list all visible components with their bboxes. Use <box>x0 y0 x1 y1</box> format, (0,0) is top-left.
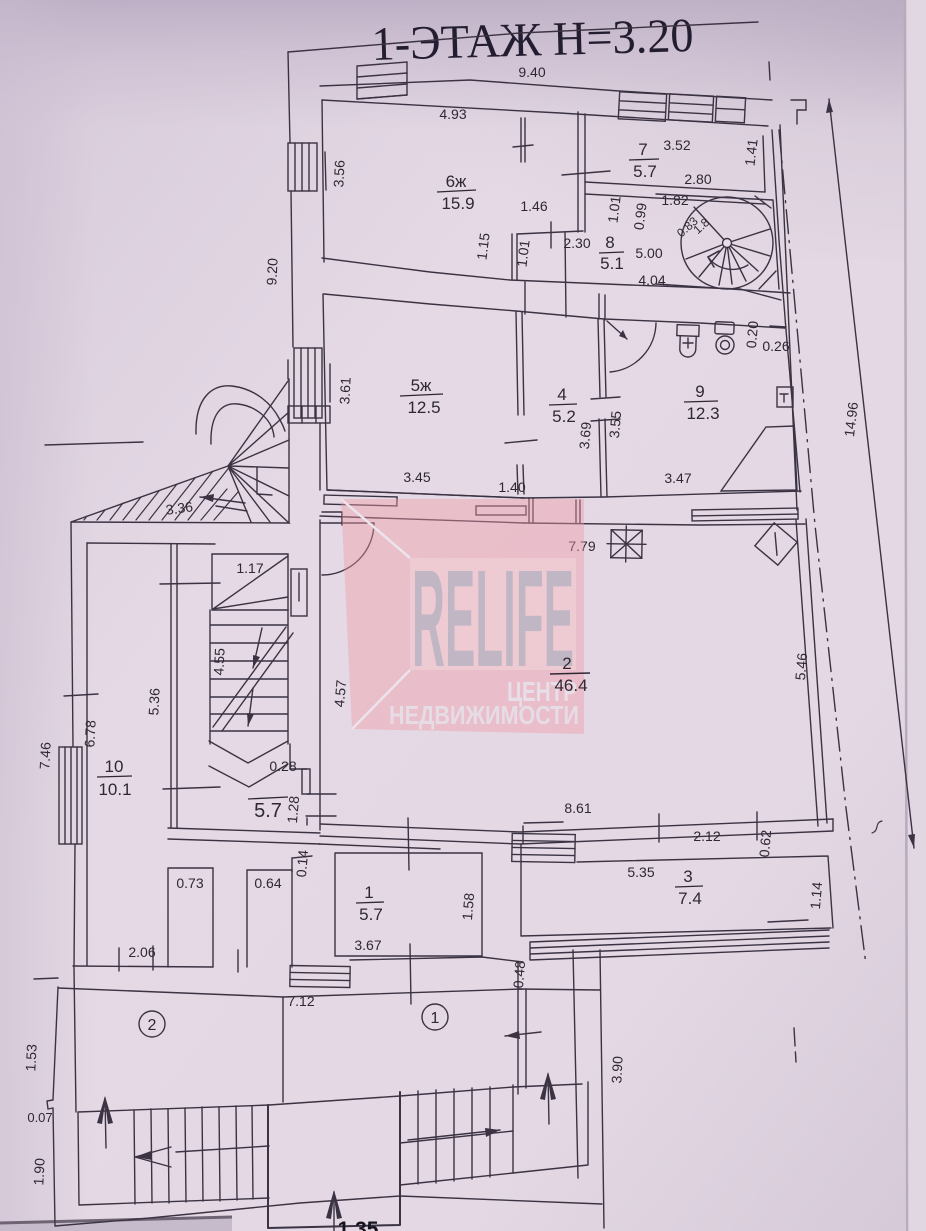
svg-text:4.55: 4.55 <box>210 648 227 676</box>
svg-text:7.46: 7.46 <box>36 742 53 770</box>
svg-text:15.9: 15.9 <box>441 194 474 213</box>
svg-text:0.73: 0.73 <box>176 875 203 891</box>
svg-text:9.40: 9.40 <box>518 64 545 80</box>
svg-text:2.12: 2.12 <box>693 828 720 844</box>
svg-text:0.48: 0.48 <box>510 960 528 989</box>
svg-text:НЕДВИЖИМОСТИ: НЕДВИЖИМОСТИ <box>389 700 579 730</box>
svg-text:0.28: 0.28 <box>269 758 296 774</box>
svg-text:5.2: 5.2 <box>552 407 576 426</box>
svg-text:3.61: 3.61 <box>336 377 353 405</box>
svg-text:8: 8 <box>605 233 614 252</box>
svg-text:9.20: 9.20 <box>263 258 280 286</box>
svg-text:1.15: 1.15 <box>473 232 492 261</box>
svg-text:0.99: 0.99 <box>630 202 649 231</box>
svg-text:12.3: 12.3 <box>686 404 719 423</box>
svg-text:2.06: 2.06 <box>128 944 155 960</box>
svg-text:0.14: 0.14 <box>293 849 311 878</box>
svg-text:1.14: 1.14 <box>807 881 825 910</box>
svg-text:3.45: 3.45 <box>403 469 430 485</box>
svg-text:0.07: 0.07 <box>27 1110 52 1125</box>
svg-text:5.7: 5.7 <box>359 905 383 924</box>
svg-text:3.67: 3.67 <box>354 937 381 953</box>
svg-text:1.41: 1.41 <box>741 138 760 167</box>
svg-text:10.1: 10.1 <box>98 780 131 799</box>
svg-text:1.58: 1.58 <box>459 892 477 921</box>
svg-text:1.82: 1.82 <box>661 192 688 208</box>
svg-text:6.78: 6.78 <box>81 720 98 748</box>
svg-text:1.28: 1.28 <box>284 795 302 824</box>
svg-text:5.7: 5.7 <box>633 162 657 181</box>
svg-text:4.57: 4.57 <box>331 679 349 708</box>
svg-text:10: 10 <box>105 757 124 776</box>
svg-text:1.01: 1.01 <box>513 239 532 268</box>
svg-text:2: 2 <box>562 654 571 673</box>
svg-text:1: 1 <box>364 883 373 902</box>
svg-text:1.35: 1.35 <box>338 1218 379 1231</box>
svg-text:3.52: 3.52 <box>663 137 690 153</box>
svg-text:1.53: 1.53 <box>22 1044 39 1072</box>
svg-text:1.90: 1.90 <box>30 1158 47 1186</box>
svg-text:RELIFE: RELIFE <box>412 542 574 696</box>
svg-text:46.4: 46.4 <box>554 676 587 695</box>
svg-text:3.56: 3.56 <box>330 160 347 188</box>
svg-text:6ж: 6ж <box>446 172 467 191</box>
svg-text:7.4: 7.4 <box>678 889 702 908</box>
svg-text:5.36: 5.36 <box>145 688 162 716</box>
svg-text:0.64: 0.64 <box>254 875 281 891</box>
svg-text:7.12: 7.12 <box>287 993 314 1009</box>
svg-text:12.5: 12.5 <box>407 398 440 417</box>
svg-text:5.00: 5.00 <box>635 245 662 261</box>
svg-text:2.80: 2.80 <box>684 171 711 187</box>
svg-text:1.40: 1.40 <box>498 479 525 495</box>
svg-text:3.69: 3.69 <box>576 421 594 450</box>
svg-text:0.62: 0.62 <box>756 829 774 858</box>
svg-text:5.1: 5.1 <box>600 254 624 273</box>
svg-text:1.01: 1.01 <box>604 195 623 224</box>
svg-text:3.47: 3.47 <box>664 470 691 486</box>
svg-text:7: 7 <box>638 140 647 159</box>
svg-text:4.93: 4.93 <box>439 106 466 122</box>
svg-text:1.46: 1.46 <box>520 198 547 214</box>
svg-text:2.30: 2.30 <box>563 235 590 251</box>
svg-text:2: 2 <box>148 1017 157 1034</box>
svg-text:5.46: 5.46 <box>792 652 810 681</box>
svg-text:5ж: 5ж <box>411 376 432 395</box>
svg-text:8.61: 8.61 <box>564 800 591 816</box>
svg-text:3.90: 3.90 <box>608 1056 625 1084</box>
svg-text:3.55: 3.55 <box>606 410 624 439</box>
svg-text:1: 1 <box>431 1010 440 1027</box>
svg-text:1-ЭТАЖ Н=3.20: 1-ЭТАЖ Н=3.20 <box>371 9 694 71</box>
svg-text:5.35: 5.35 <box>627 864 654 880</box>
svg-text:4: 4 <box>557 385 566 404</box>
svg-text:9: 9 <box>695 382 704 401</box>
svg-text:0.20: 0.20 <box>743 320 761 349</box>
svg-text:5.7: 5.7 <box>254 800 282 822</box>
svg-text:3: 3 <box>683 867 692 886</box>
svg-text:0.26: 0.26 <box>762 338 789 354</box>
svg-text:1.17: 1.17 <box>236 560 263 576</box>
svg-text:4.04: 4.04 <box>638 272 665 288</box>
